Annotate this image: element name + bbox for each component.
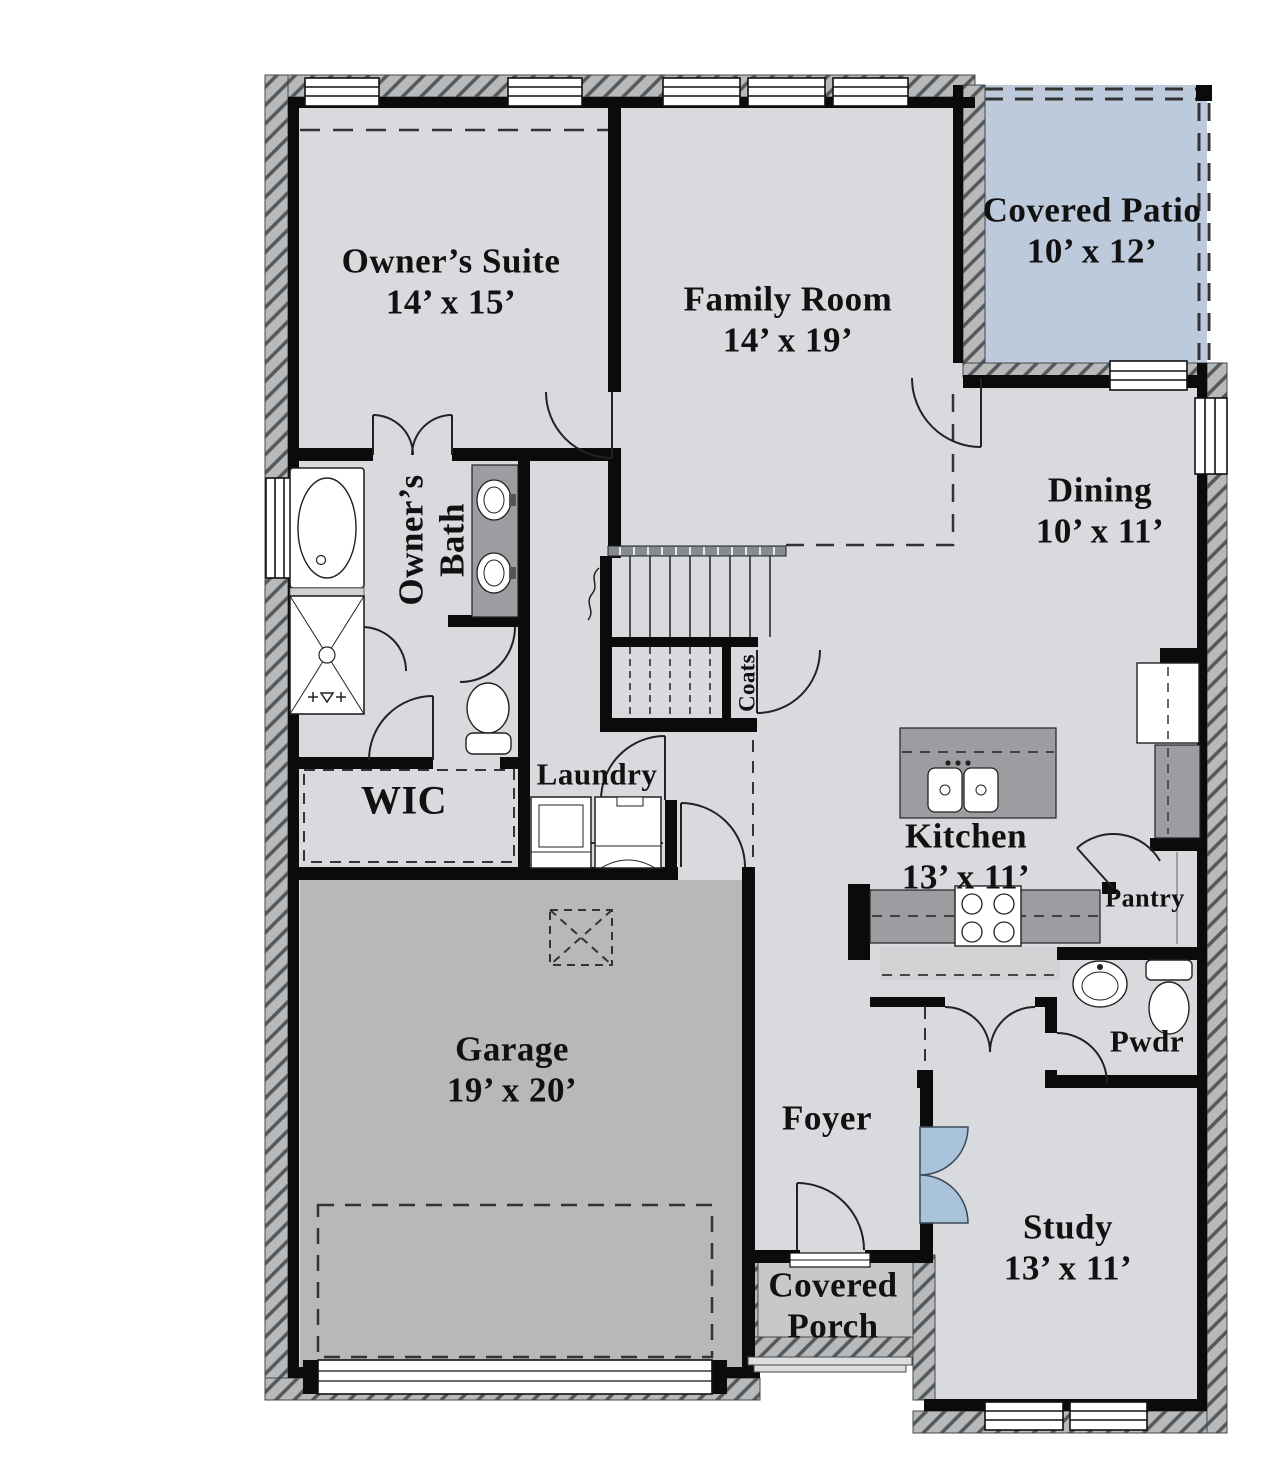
room-label-family-room: Family Room 14’ x 19’ (684, 279, 893, 362)
room-label-foyer: Foyer (782, 1097, 872, 1138)
room-label-coats: Coats (733, 654, 760, 712)
room-label-laundry: Laundry (537, 757, 658, 794)
room-label-pantry: Pantry (1105, 884, 1185, 915)
room-label-dining: Dining 10’ x 11’ (1036, 470, 1164, 553)
floor-plan: Owner’s Suite 14’ x 15’ Family Room 14’ … (0, 0, 1261, 1462)
room-label-garage: Garage 19’ x 20’ (447, 1029, 577, 1112)
room-label-pwdr: Pwdr (1110, 1024, 1184, 1061)
room-label-kitchen: Kitchen 13’ x 11’ (902, 816, 1030, 899)
room-label-owners-suite: Owner’s Suite 14’ x 15’ (342, 241, 561, 324)
room-label-study: Study 13’ x 11’ (1004, 1207, 1132, 1290)
room-labels: Owner’s Suite 14’ x 15’ Family Room 14’ … (0, 0, 1261, 1462)
room-label-covered-patio: Covered Patio 10’ x 12’ (983, 190, 1202, 273)
room-label-wic: WIC (361, 776, 447, 823)
room-label-covered-porch: Covered Porch (748, 1265, 918, 1348)
room-label-owners-bath: Owner’s Bath (391, 465, 474, 615)
